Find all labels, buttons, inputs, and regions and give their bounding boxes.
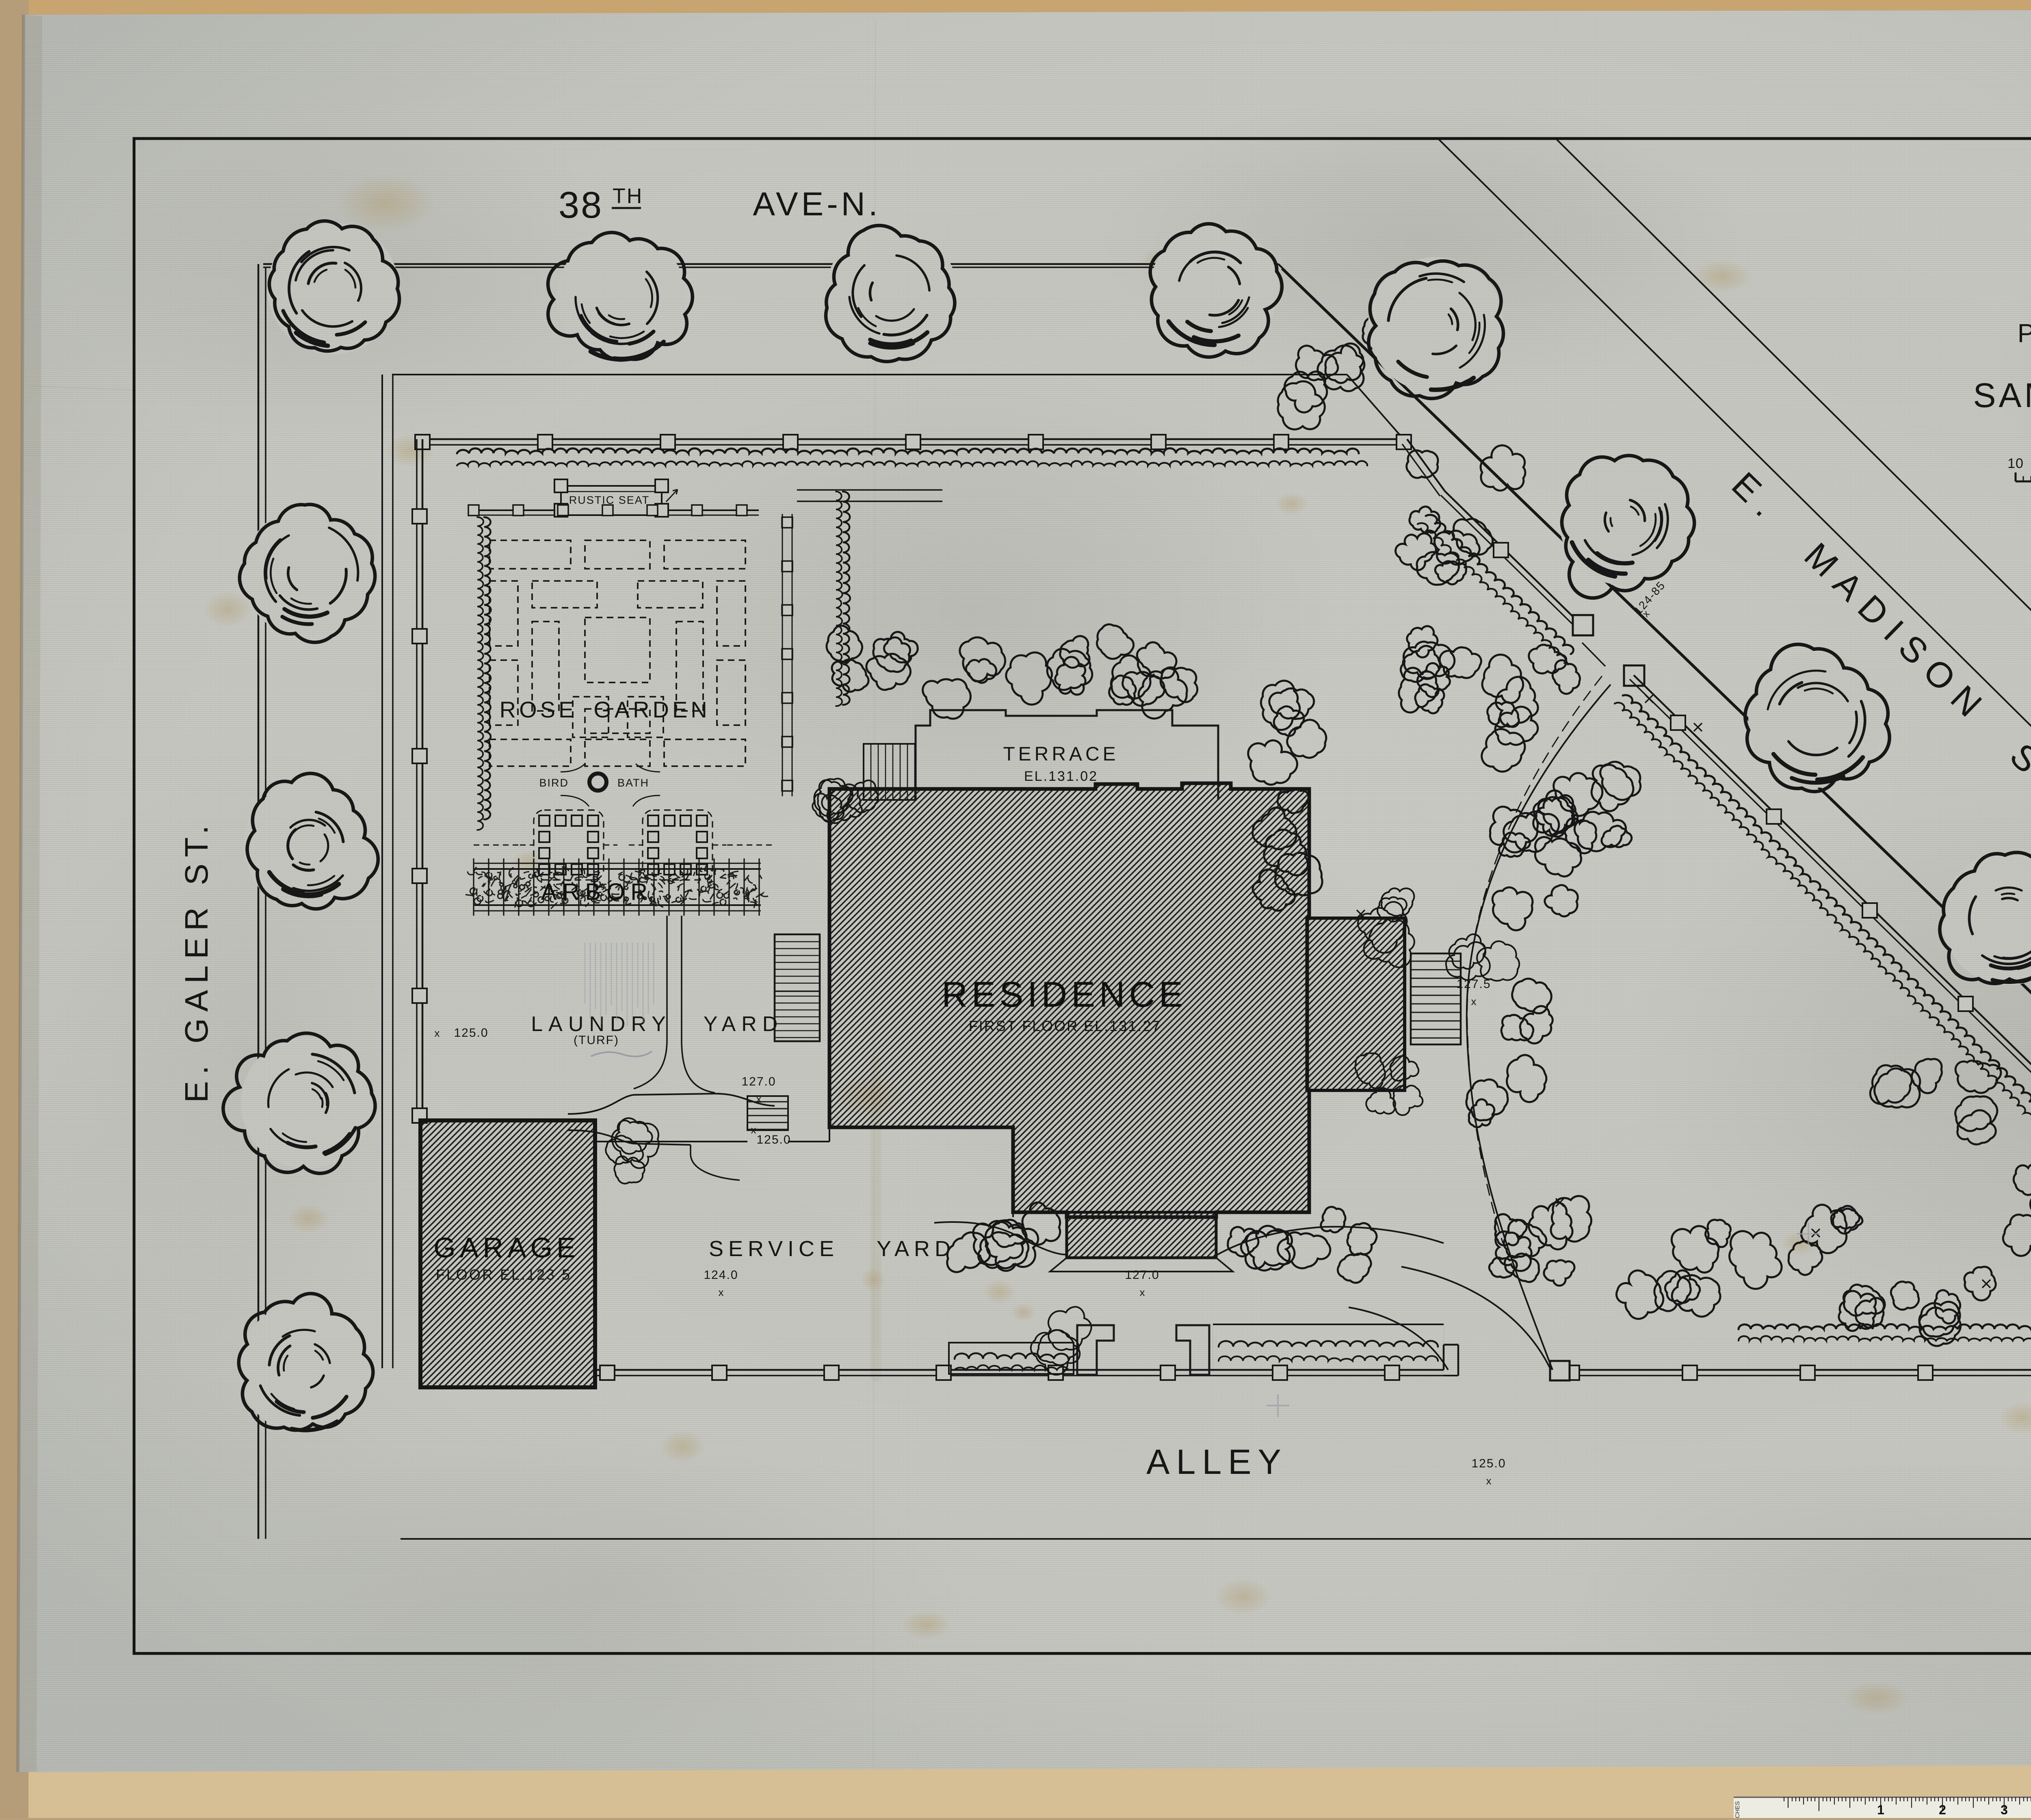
svg-text:x: x xyxy=(1471,995,1477,1007)
svg-text:ALLEY: ALLEY xyxy=(1146,1443,1288,1482)
svg-text:BATH: BATH xyxy=(617,777,649,789)
svg-text:ROSE: ROSE xyxy=(500,697,577,722)
svg-text:x: x xyxy=(751,1124,756,1136)
svg-text:x: x xyxy=(756,1093,762,1105)
svg-text:127.0: 127.0 xyxy=(741,1075,776,1088)
svg-text:YARD: YARD xyxy=(877,1237,955,1261)
svg-text:ARBOR: ARBOR xyxy=(541,879,653,905)
svg-text:GARAGE: GARAGE xyxy=(433,1232,580,1263)
svg-text:124.0: 124.0 xyxy=(704,1268,738,1282)
svg-text:GARDEN: GARDEN xyxy=(593,697,710,722)
svg-text:E. GALER ST.: E. GALER ST. xyxy=(178,819,214,1103)
svg-text:EL.131.02: EL.131.02 xyxy=(1024,769,1098,784)
svg-text:PRELIMINARY PLAN: PRELIMINARY PLAN xyxy=(2018,318,2031,348)
svg-text:RESIDENCE: RESIDENCE xyxy=(942,974,1187,1014)
svg-text:125.0: 125.0 xyxy=(1471,1457,1506,1470)
svg-text:10: 10 xyxy=(2007,456,2024,471)
svg-text:3: 3 xyxy=(2001,1803,2008,1817)
svg-text:x: x xyxy=(435,1027,440,1039)
svg-text:BIRD: BIRD xyxy=(539,777,569,789)
svg-text:x: x xyxy=(719,1286,724,1298)
svg-text:FIRST FLOOR EL.131.27: FIRST FLOOR EL.131.27 xyxy=(969,1018,1162,1034)
svg-text:INCHES: INCHES xyxy=(1734,1801,1741,1818)
svg-text:125.0: 125.0 xyxy=(454,1026,488,1040)
svg-text:AVE-N.: AVE-N. xyxy=(753,186,881,223)
svg-text:TH: TH xyxy=(613,184,643,208)
svg-text:TERRACE: TERRACE xyxy=(1003,743,1119,765)
svg-text:127.0: 127.0 xyxy=(1125,1268,1159,1282)
svg-text:SERVICE: SERVICE xyxy=(709,1237,839,1261)
svg-text:FLOOR EL.123.5: FLOOR EL.123.5 xyxy=(436,1266,572,1283)
svg-text:125.0: 125.0 xyxy=(756,1133,791,1146)
svg-text:2: 2 xyxy=(1939,1803,1946,1817)
svg-text:1: 1 xyxy=(1877,1803,1884,1817)
svg-text:38: 38 xyxy=(559,184,603,226)
svg-text:127.5: 127.5 xyxy=(1456,977,1491,991)
svg-text:x: x xyxy=(1140,1286,1145,1298)
svg-text:x: x xyxy=(1486,1475,1492,1487)
svg-text:(TURF): (TURF) xyxy=(574,1033,619,1047)
svg-text:YARD: YARD xyxy=(704,1012,784,1036)
svg-text:SAMUEL HYDE, ESQ: SAMUEL HYDE, ESQ xyxy=(1973,376,2031,414)
